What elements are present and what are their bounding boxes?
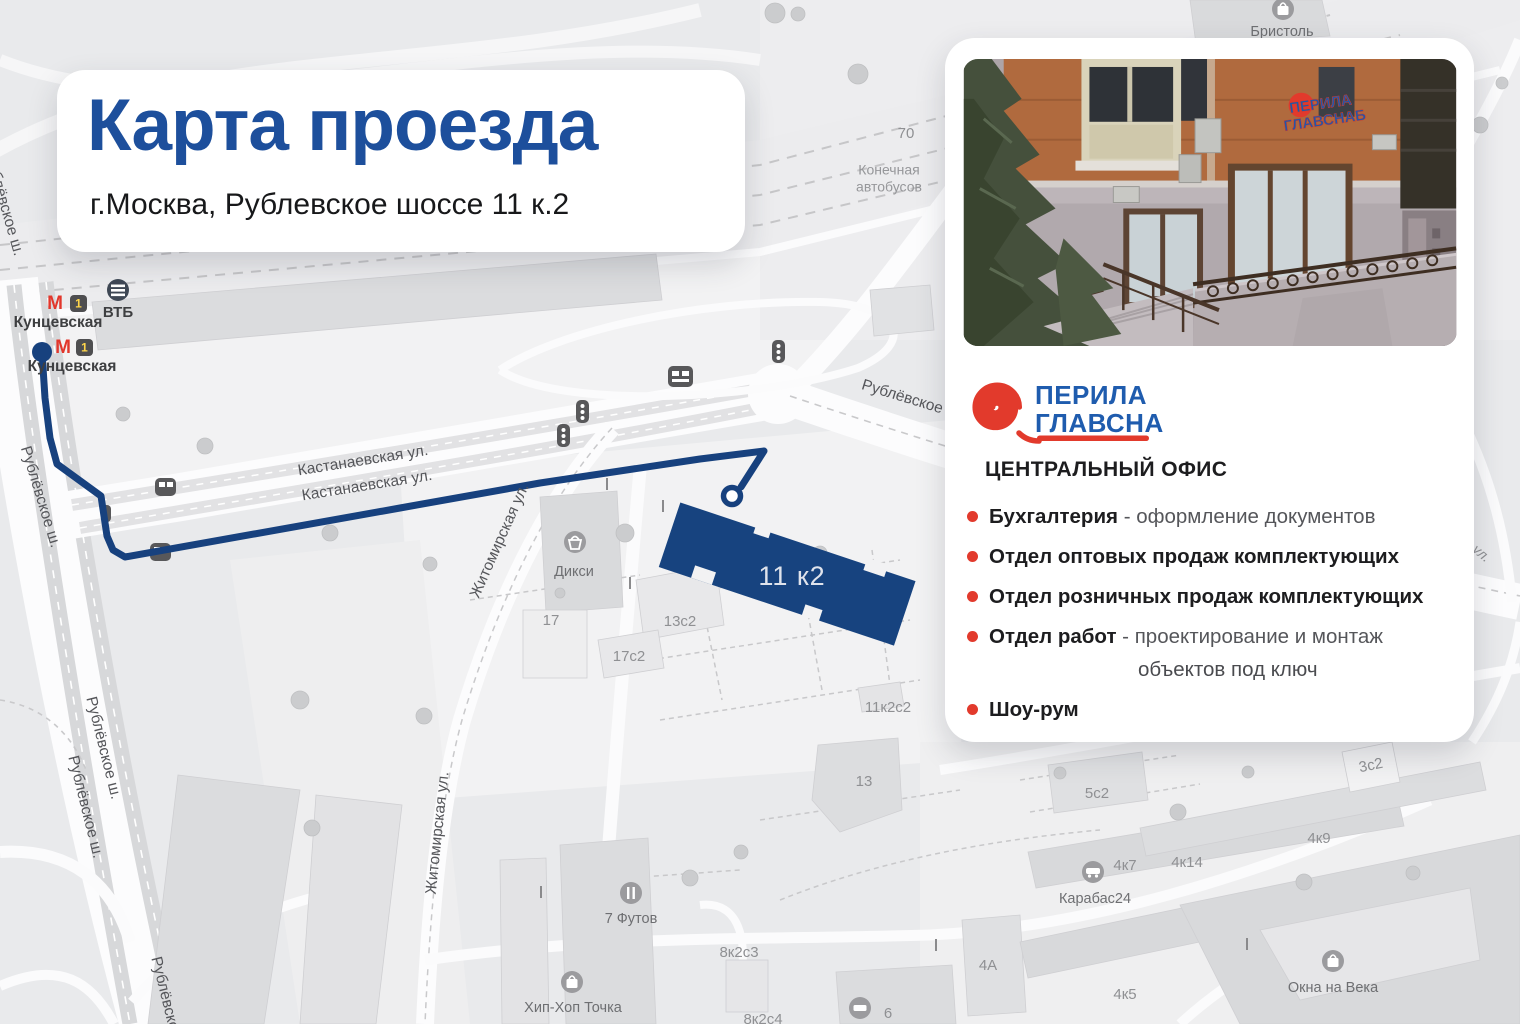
office-photo: ПЕРИЛА ГЛАВСНАБ bbox=[963, 59, 1457, 346]
building-label: 4к14 bbox=[1171, 854, 1203, 871]
area-label: Конечная bbox=[858, 162, 919, 178]
route-end-marker bbox=[724, 488, 741, 505]
metro-icon: М bbox=[47, 293, 63, 314]
office-heading: ЦЕНТРАЛЬНЫЙ ОФИС bbox=[985, 458, 1227, 482]
poi-label: Хип-Хоп Точка bbox=[524, 1000, 623, 1016]
poi-label: Дикси bbox=[554, 564, 594, 580]
building-label: 6 bbox=[884, 1005, 892, 1022]
list-item: Бухгалтерия - оформление документов bbox=[967, 505, 1458, 528]
info-card: ПЕРИЛА ГЛАВСНАБ bbox=[945, 38, 1474, 742]
direction-map-infographic: 11 к2 М 1 Кунцевская М 1 Кунцевская ВТБ bbox=[0, 0, 1520, 1024]
building-label: 11к2с2 bbox=[865, 699, 911, 716]
logo-underline bbox=[1037, 436, 1149, 442]
building-label: 17с2 bbox=[613, 648, 646, 665]
svg-text:1: 1 bbox=[75, 297, 82, 311]
logo-line1: ПЕРИЛА bbox=[1035, 380, 1147, 410]
building-label: 8к2с4 bbox=[743, 1011, 782, 1024]
list-item: Отдел оптовых продаж комплектующих bbox=[967, 545, 1458, 568]
metro-icon: М bbox=[55, 337, 71, 358]
logo-spiral-icon bbox=[975, 385, 1020, 428]
building-label: 4к5 bbox=[1113, 986, 1136, 1003]
building-label: 5с2 bbox=[1085, 785, 1109, 802]
building-label: 4к9 bbox=[1307, 830, 1330, 847]
building-label: 70 bbox=[898, 125, 915, 142]
company-logo: ПЕРИЛА ГЛАВСНАБ bbox=[963, 371, 1163, 451]
list-item-continuation: объектов под ключ bbox=[1138, 658, 1458, 681]
bullet-icon bbox=[967, 704, 978, 715]
title-card: Карта проезда г.Москва, Рублевское шоссе… bbox=[57, 70, 745, 252]
address-subtitle: г.Москва, Рублевское шоссе 11 к.2 bbox=[90, 188, 569, 222]
poi-label: 7 Футов bbox=[605, 911, 658, 927]
area-label: автобусов bbox=[856, 179, 922, 195]
destination-label: 11 к2 bbox=[758, 561, 825, 591]
page-title: Карта проезда bbox=[87, 84, 597, 167]
bullet-icon bbox=[967, 511, 978, 522]
bullet-icon bbox=[967, 551, 978, 562]
poi-label: Окна на Века bbox=[1288, 980, 1379, 996]
office-departments-list: Бухгалтерия - оформление документов Отде… bbox=[967, 505, 1458, 738]
building-label: 4А bbox=[979, 957, 997, 974]
building-label: 8к2с3 bbox=[719, 944, 758, 961]
vtb-label: ВТБ bbox=[103, 304, 133, 321]
list-item: Шоу-рум bbox=[967, 698, 1458, 721]
building-label: 13с2 bbox=[664, 613, 697, 630]
metro-station-label: Кунцевская bbox=[28, 358, 117, 375]
building-label: 4к7 bbox=[1113, 857, 1136, 874]
bullet-icon bbox=[967, 631, 978, 642]
list-item: Отдел розничных продаж комплектующих bbox=[967, 585, 1458, 608]
list-item: Отдел работ - проектирование и монтаж bbox=[967, 625, 1458, 648]
bullet-icon bbox=[967, 591, 978, 602]
logo-line2: ГЛАВСНАБ bbox=[1035, 408, 1163, 438]
building-label: 13 bbox=[856, 773, 873, 790]
svg-text:1: 1 bbox=[81, 341, 88, 355]
metro-station-label: Кунцевская bbox=[14, 314, 103, 331]
poi-label: Карабас24 bbox=[1059, 891, 1131, 907]
building-label: 17 bbox=[543, 612, 560, 629]
